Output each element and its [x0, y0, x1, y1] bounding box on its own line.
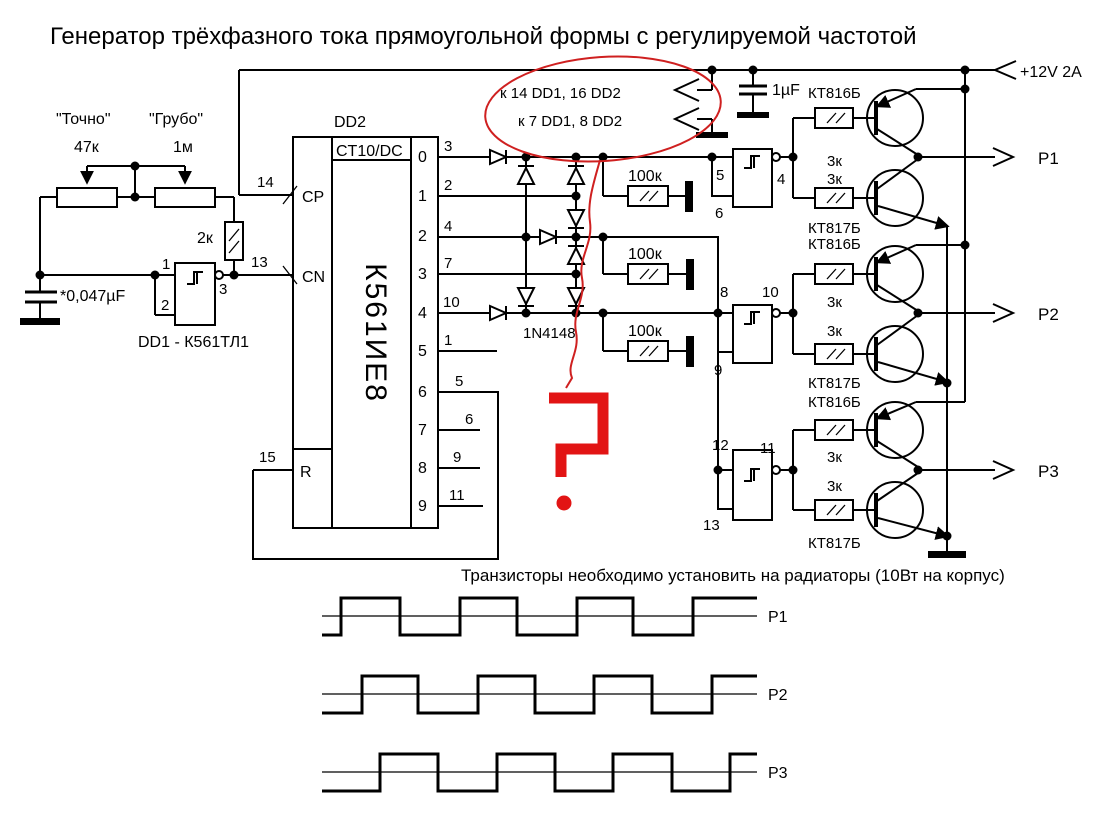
dd1-pin2: 2: [161, 297, 169, 314]
oscillator-section: "Точно" "Грубо" 47к 1м 2к *0,047µF: [20, 111, 293, 351]
resistor-3k-label: 3к: [827, 294, 842, 311]
buffer-gate-3: [733, 450, 772, 520]
npn-label: КТ817Б: [808, 375, 861, 392]
pnp-label: КТ816Б: [808, 85, 861, 102]
dd2-out-7: 7: [418, 422, 427, 439]
supply-label: +12V 2A: [1020, 64, 1082, 81]
resistor-3k-label: 3к: [827, 153, 842, 170]
coarse-pot-value: 1м: [173, 139, 193, 156]
ground-symbol: [20, 318, 60, 325]
resistor-100k: [628, 186, 668, 206]
resistor-3k-label: 3к: [827, 323, 842, 340]
ground-symbol: [737, 112, 769, 118]
dd2-ref: DD2: [334, 114, 366, 131]
red-ellipse-highlight: [482, 49, 725, 169]
filter-cap-label: 1µF: [772, 82, 800, 99]
resistor-3k: [815, 264, 853, 284]
resistor-100k: [628, 264, 668, 284]
dd2-cn-pin: 13: [251, 254, 268, 271]
pnp-label: КТ816Б: [808, 236, 861, 253]
output-p2-label: P2: [1038, 305, 1059, 324]
buffer3-pin-out: 11: [760, 440, 776, 457]
output-p3-label: P3: [1038, 462, 1059, 481]
resistor-3k: [815, 344, 853, 364]
resistor-3k-label: 3к: [827, 478, 842, 495]
waveform-p2-label: P2: [768, 687, 788, 704]
npn-label: КТ817Б: [808, 220, 861, 237]
dd2-out-4: 4: [418, 305, 427, 322]
dd1-label: DD1 - К561ТЛ1: [138, 334, 249, 351]
resistor-3k: [815, 500, 853, 520]
inverter-circle-icon: [772, 153, 780, 161]
timing-cap-label: *0,047µF: [60, 288, 125, 305]
ground-symbol: [928, 551, 966, 558]
pnp-label: КТ816Б: [808, 394, 861, 411]
npn-label: КТ817Б: [808, 535, 861, 552]
dd2-out-9-pin: 11: [449, 487, 465, 504]
power-input-arrow-icon: [995, 61, 1016, 79]
waveform-p3-label: P3: [768, 765, 788, 782]
buffer1-pin-in: 5: [716, 167, 724, 184]
schematic-page: Генератор трёхфазного тока прямоугольной…: [0, 0, 1103, 818]
buffer2-pin-tie: 9: [714, 362, 722, 379]
dd2-out-6: 6: [418, 384, 427, 401]
resistor-3k: [815, 108, 853, 128]
dd2-part: К561ИЕ8: [359, 263, 392, 403]
dd2-out-8-pin: 9: [453, 449, 461, 466]
diode-icon: [490, 150, 506, 164]
capacitor-bar-icon: [685, 181, 693, 212]
chevron-left-icon: [675, 79, 699, 101]
resistor-100k-label: 100к: [628, 323, 663, 340]
buffer3-pin-in: 12: [712, 437, 729, 454]
power-note-2: к 7 DD1, 8 DD2: [518, 113, 622, 130]
output-arrow-icon: [993, 304, 1013, 322]
fine-pot-value: 47к: [74, 139, 100, 156]
dd2-r-label: R: [300, 464, 312, 481]
resistor-3k-label: 3к: [827, 171, 842, 188]
dd2-out-5: 5: [418, 343, 427, 360]
rc-networks: 100к 100к 100к: [603, 157, 694, 367]
diode-icon: [540, 230, 556, 244]
resistor-2k: [225, 222, 243, 260]
dd2-cn-label: CN: [302, 269, 325, 286]
dd2-out-3: 3: [418, 266, 427, 283]
circuit-diagram: Генератор трёхфазного тока прямоугольной…: [0, 0, 1103, 818]
dd2-out-2-pin: 4: [444, 218, 452, 235]
resistor-3k: [815, 188, 853, 208]
dd2-r-pin: 15: [259, 449, 276, 466]
fine-pot-name: "Точно": [56, 111, 111, 128]
chevron-left-icon: [675, 108, 699, 130]
dd2-out-8: 8: [418, 460, 427, 477]
buffer-gates: 5 6 4 8 9 10 12 13 11: [703, 149, 793, 534]
output-arrow-icon: [993, 148, 1013, 166]
fine-pot-resistor: [57, 188, 117, 207]
dd2-out-3-pin: 7: [444, 255, 452, 272]
dd1-pin3: 3: [219, 281, 227, 298]
buffer2-pin-in: 8: [720, 284, 728, 301]
power-note-1: к 14 DD1, 16 DD2: [500, 85, 621, 102]
buffer-gate-1: [733, 149, 772, 207]
resistor-3k: [815, 420, 853, 440]
inverter-circle-icon: [215, 271, 223, 279]
dd2-out-7-pin: 6: [465, 411, 473, 428]
inverter-circle-icon: [772, 466, 780, 474]
inverter-circle-icon: [772, 309, 780, 317]
dd2-cp-pin: 14: [257, 174, 274, 191]
diode-icon: [568, 168, 584, 184]
dd2-function: CT10/DC: [336, 143, 403, 160]
waveform-p1-label: P1: [768, 609, 788, 626]
dd2-out-5-pin: 1: [444, 332, 452, 349]
buffer1-pin-out: 4: [777, 171, 785, 188]
buffer-gate-2: [733, 305, 772, 363]
dd2-cp-label: CP: [302, 189, 324, 206]
page-title: Генератор трёхфазного тока прямоугольной…: [50, 23, 916, 50]
dd2-out-6-pin: 5: [455, 373, 463, 390]
dd2-out-0-pin: 3: [444, 138, 452, 155]
buffer3-pin-tie: 13: [703, 517, 720, 534]
coarse-pot-resistor: [155, 188, 215, 207]
dd2-out-4-pin: 10: [443, 294, 460, 311]
resistor-2k-label: 2к: [197, 230, 214, 247]
red-question-mark: [549, 398, 603, 477]
buffer2-pin-out: 10: [762, 284, 779, 301]
diode-icon: [518, 288, 534, 304]
dd2-out-0: 0: [418, 149, 427, 166]
diode-icon: [568, 210, 584, 226]
diode-icon: [490, 306, 506, 320]
dd2-out-1: 1: [418, 188, 427, 205]
capacitor-bar-icon: [686, 336, 694, 367]
waveforms: P1 P2 P3: [322, 598, 788, 791]
resistor-100k-label: 100к: [628, 168, 663, 185]
output-stages: 3к 3к КТ816Б КТ817Б P1 3к 3к КТ816Б: [793, 70, 1059, 558]
resistor-100k-label: 100к: [628, 246, 663, 263]
red-question-dot: [557, 496, 572, 511]
capacitor-bar-icon: [686, 259, 694, 290]
buffer1-pin-tie: 6: [715, 205, 723, 222]
radiator-note: Транзисторы необходимо установить на рад…: [461, 566, 1005, 585]
diode-part-label: 1N4148: [523, 325, 576, 342]
resistor-100k: [628, 341, 668, 361]
dd2-out-9: 9: [418, 498, 427, 515]
dd1-pin1: 1: [162, 256, 170, 273]
output-arrow-icon: [993, 461, 1013, 479]
dd2-out-1-pin: 2: [444, 177, 452, 194]
dd2-out-2: 2: [418, 228, 427, 245]
output-p1-label: P1: [1038, 149, 1059, 168]
coarse-pot-name: "Грубо": [149, 111, 203, 128]
resistor-3k-label: 3к: [827, 449, 842, 466]
diode-icon: [518, 168, 534, 184]
